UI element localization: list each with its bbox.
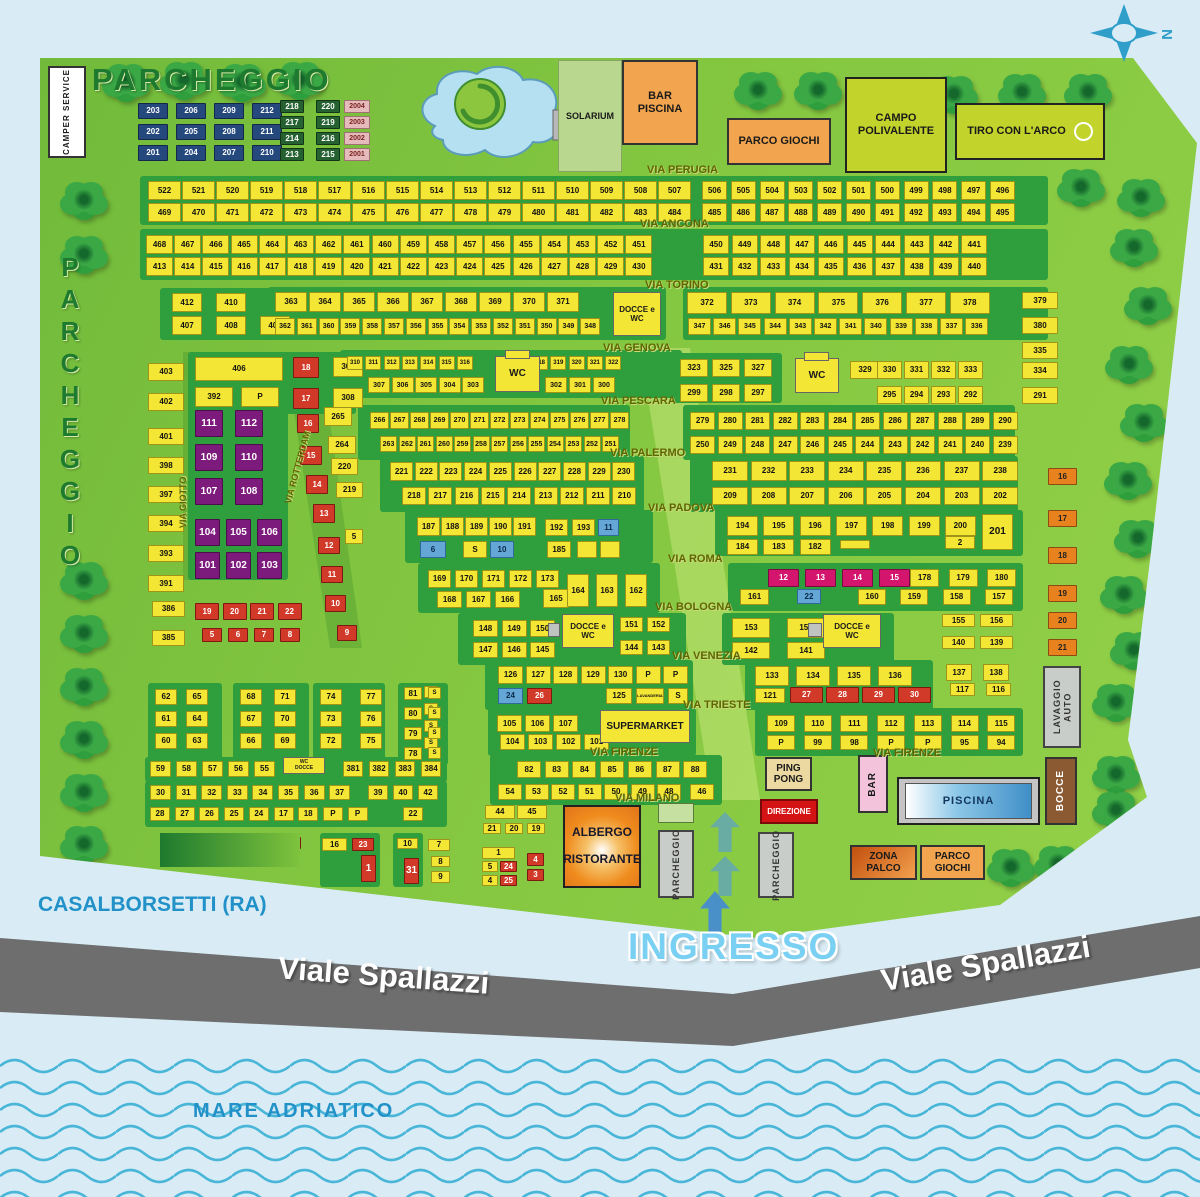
plot-30: 30: [150, 785, 171, 800]
plot-blank: [577, 541, 597, 558]
plot-241: 241: [938, 436, 963, 454]
plot-137: 137: [946, 664, 972, 681]
plot-495: 495: [990, 203, 1015, 222]
plot-P: P: [241, 387, 279, 407]
plot-163: 163: [596, 574, 618, 607]
plot-166: 166: [495, 591, 520, 608]
plot-332: 332: [931, 361, 956, 379]
plot-482: 482: [590, 203, 623, 222]
plot-276: 276: [570, 412, 589, 429]
plot-7: 7: [428, 839, 450, 851]
plot-501: 501: [846, 181, 871, 200]
docce-wc-bologna-ovest: DOCCE e WC: [562, 614, 614, 648]
plot-515: 515: [386, 181, 419, 200]
campground-map: PARCHEGGIO PARCHEGGIO 203206209212202205…: [0, 0, 1200, 950]
tree-icon: [1043, 850, 1073, 876]
plot-107: 107: [553, 715, 578, 732]
plot-149: 149: [502, 620, 527, 637]
plot-361: 361: [297, 318, 317, 335]
plot-3: 3: [527, 869, 544, 881]
plot-442: 442: [933, 235, 959, 254]
plot-371: 371: [547, 292, 579, 312]
plot-180: 180: [987, 569, 1016, 587]
plot-212: 212: [560, 487, 584, 505]
street-label: VIA GENOVA: [603, 342, 671, 354]
plot-220: 220: [316, 100, 340, 113]
plot-406: 406: [195, 357, 283, 381]
plot-263: 263: [380, 436, 397, 452]
plot-104: 104: [500, 734, 525, 750]
plot-107: 107: [195, 478, 223, 505]
plot-248: 248: [745, 436, 770, 454]
bar-piscina-label: BAR PISCINA: [638, 90, 683, 115]
plot-355: 355: [428, 318, 448, 335]
parco-giochi-nord: PARCO GIOCHI: [727, 118, 831, 165]
plot-494: 494: [961, 203, 986, 222]
plot-219: 219: [336, 482, 363, 498]
plot-194: 194: [727, 516, 758, 536]
plot-312: 312: [384, 356, 400, 370]
plot-472: 472: [250, 203, 283, 222]
plot-468: 468: [146, 235, 173, 254]
parco-giochi-sud-label: PARCO GIOCHI: [935, 851, 971, 874]
piscina: PISCINA: [905, 783, 1032, 819]
plot-258: 258: [473, 436, 490, 452]
plot-213: 213: [280, 148, 304, 161]
plot-82: 82: [517, 761, 541, 778]
plot-189: 189: [465, 517, 488, 536]
plot-26: 26: [527, 688, 552, 704]
plot-446: 446: [818, 235, 844, 254]
plot-349: 349: [558, 318, 578, 335]
plot-217: 217: [428, 487, 452, 505]
plot-492: 492: [904, 203, 929, 222]
plot-458: 458: [428, 235, 455, 254]
plot-354: 354: [449, 318, 469, 335]
plot-20: 20: [1048, 612, 1077, 629]
plot-415: 415: [202, 257, 229, 276]
plot-125: 125: [606, 688, 632, 704]
plot-227: 227: [538, 462, 561, 481]
plot-428: 428: [569, 257, 596, 276]
plot-208: 208: [214, 124, 244, 140]
camper-service: CAMPER SERVICE: [48, 66, 86, 158]
plot-478: 478: [454, 203, 487, 222]
plot-384: 384: [421, 761, 441, 777]
plot-135: 135: [837, 666, 871, 686]
plot-331: 331: [904, 361, 929, 379]
plot-211: 211: [252, 124, 282, 140]
plot-466: 466: [202, 235, 229, 254]
plot-144: 144: [620, 640, 643, 655]
plot-238: 238: [982, 461, 1018, 481]
street-label: VIA PERUGIA: [647, 164, 718, 176]
plot-P: P: [767, 735, 795, 750]
plot-322: 322: [605, 356, 621, 370]
plot-207: 207: [214, 145, 244, 161]
plot-203: 203: [944, 487, 980, 505]
plot-475: 475: [352, 203, 385, 222]
plot-81: 81: [404, 687, 422, 700]
plot-425: 425: [484, 257, 511, 276]
plot-419: 419: [315, 257, 342, 276]
plot-22: 22: [797, 589, 821, 604]
plot-210: 210: [612, 487, 636, 505]
plot-27: 27: [790, 687, 823, 703]
tree-icon: [69, 186, 99, 212]
plot-499: 499: [904, 181, 929, 200]
plot-287: 287: [910, 412, 935, 430]
plot-430: 430: [625, 257, 652, 276]
viale-spallazzi-road: [0, 905, 1200, 1055]
road-band: [715, 510, 1023, 556]
plot-197: 197: [836, 516, 867, 536]
plot-433: 433: [760, 257, 786, 276]
lavaggio-auto: LAVAGGIO AUTO: [1043, 666, 1081, 748]
plot-327: 327: [744, 359, 772, 377]
plot-130: 130: [608, 666, 633, 684]
plot-52: 52: [551, 784, 575, 800]
plot-8: 8: [431, 856, 450, 867]
area-verde-ingresso: [658, 803, 694, 823]
plot-152: 152: [647, 617, 670, 632]
tree-icon: [69, 778, 99, 804]
plot-88: 88: [683, 761, 707, 778]
plot-265: 265: [324, 407, 352, 426]
tree-icon: [69, 619, 99, 645]
plot-94: 94: [987, 735, 1015, 750]
plot-22: 22: [278, 603, 302, 620]
plot-359: 359: [340, 318, 360, 335]
plot-372: 372: [687, 292, 727, 314]
plot-207: 207: [789, 487, 825, 505]
plot-200: 200: [945, 516, 976, 536]
street-label: VIA ROMA: [668, 553, 723, 565]
plot-23: 23: [352, 838, 374, 851]
plot-29: 29: [862, 687, 895, 703]
street-label: VIA ANCONA: [640, 218, 709, 230]
plot-42: 42: [418, 785, 438, 800]
plot-78: 78: [404, 747, 422, 760]
plot-379: 379: [1022, 292, 1058, 309]
tree-icon: [69, 672, 99, 698]
plot-155: 155: [942, 614, 975, 627]
plot-136: 136: [878, 666, 912, 686]
parcheggio-interno-2: PARCHEGGIO: [758, 832, 794, 898]
plot-202: 202: [982, 487, 1018, 505]
tree-icon: [1129, 408, 1159, 434]
plot-76: 76: [360, 711, 382, 727]
plot-209: 209: [214, 103, 244, 119]
plot-401: 401: [148, 428, 184, 445]
plot-493: 493: [932, 203, 957, 222]
plot-16: 16: [322, 838, 347, 851]
plot-367: 367: [411, 292, 443, 312]
plot-103: 103: [528, 734, 553, 750]
plot-79: 79: [404, 727, 422, 740]
plot-18: 18: [298, 807, 318, 821]
plot-373: 373: [731, 292, 771, 314]
plot-164: 164: [567, 574, 589, 607]
plot-363: 363: [275, 292, 307, 312]
plot-280: 280: [718, 412, 743, 430]
tree-icon: [69, 830, 99, 856]
plot-111: 111: [195, 410, 223, 437]
plot-22: 22: [403, 807, 423, 821]
plot-260: 260: [436, 436, 453, 452]
plot-216: 216: [316, 132, 340, 145]
plot-116: 116: [986, 683, 1011, 696]
tree-icon: [1123, 524, 1153, 550]
supermarket-label: SUPERMARKET: [606, 721, 683, 733]
plot-102: 102: [226, 552, 251, 579]
albergo-ristorante: ALBERGO RISTORANTE: [563, 805, 641, 888]
plot-12: 12: [768, 569, 799, 587]
plot-193: 193: [572, 519, 595, 536]
plot-173: 173: [536, 570, 559, 588]
campo-polivalente: CAMPO POLIVALENTE: [845, 77, 947, 173]
plot-68: 68: [240, 689, 262, 705]
plot-519: 519: [250, 181, 283, 200]
plot-215: 215: [316, 148, 340, 161]
plot-217: 217: [280, 116, 304, 129]
plot-509: 509: [590, 181, 623, 200]
plot-24: 24: [249, 807, 269, 821]
plot-426: 426: [513, 257, 540, 276]
plot-274: 274: [530, 412, 549, 429]
plot-184: 184: [727, 539, 758, 555]
plot-172: 172: [509, 570, 532, 588]
plot-87: 87: [656, 761, 680, 778]
plot-457: 457: [456, 235, 483, 254]
plot-368: 368: [445, 292, 477, 312]
tree-icon: [1066, 173, 1096, 199]
plot-51: 51: [578, 784, 602, 800]
plot-429: 429: [597, 257, 624, 276]
plot-112: 112: [235, 410, 263, 437]
plot-481: 481: [556, 203, 589, 222]
plot-129: 129: [581, 666, 606, 684]
plot-437: 437: [875, 257, 901, 276]
lavaggio-auto-label: LAVAGGIO AUTO: [1052, 668, 1073, 746]
plot-6: 6: [228, 628, 248, 642]
plot-282: 282: [773, 412, 798, 430]
plot-192: 192: [545, 519, 568, 536]
plot-522: 522: [148, 181, 181, 200]
plot-304: 304: [439, 377, 461, 393]
plot-352: 352: [493, 318, 513, 335]
plot-134: 134: [796, 666, 830, 686]
plot-490: 490: [846, 203, 871, 222]
plot-18: 18: [1048, 547, 1077, 564]
plot-165: 165: [543, 589, 569, 608]
plot-351: 351: [515, 318, 535, 335]
plot-204: 204: [905, 487, 941, 505]
plot-266: 266: [370, 412, 389, 429]
plot-56: 56: [228, 761, 249, 777]
plot-228: 228: [563, 462, 586, 481]
plot-393: 393: [148, 545, 184, 562]
plot-182: 182: [800, 539, 831, 555]
street-label: VIA VENEZIA: [672, 650, 741, 662]
plot-191: 191: [513, 517, 536, 536]
plot-278: 278: [610, 412, 629, 429]
plot-233: 233: [789, 461, 825, 481]
plot-420: 420: [343, 257, 370, 276]
plot-473: 473: [284, 203, 317, 222]
plot-218: 218: [280, 100, 304, 113]
plot-474: 474: [318, 203, 351, 222]
plot-10: 10: [490, 541, 514, 558]
tree-icon: [69, 725, 99, 751]
plot-114: 114: [951, 715, 979, 732]
plot-417: 417: [259, 257, 286, 276]
plot-308: 308: [333, 388, 363, 408]
direzione: DIREZIONE: [760, 799, 818, 824]
plot-188: 188: [441, 517, 464, 536]
plot-17: 17: [274, 807, 294, 821]
plot-294: 294: [904, 386, 929, 404]
plot-62: 62: [155, 689, 177, 705]
plot-P: P: [348, 807, 368, 821]
plot-126: 126: [498, 666, 523, 684]
plot-320: 320: [569, 356, 585, 370]
plot-2: 2: [945, 536, 975, 549]
plot-237: 237: [944, 461, 980, 481]
plot-424: 424: [456, 257, 483, 276]
plot-246: 246: [800, 436, 825, 454]
direzione-label: DIREZIONE: [767, 807, 811, 816]
plot-440: 440: [961, 257, 987, 276]
solarium: SOLARIUM: [558, 60, 622, 172]
plot-57: 57: [202, 761, 223, 777]
plot-127: 127: [526, 666, 551, 684]
plot-18: 18: [293, 357, 319, 378]
plot-121: 121: [755, 688, 785, 703]
street-label: VIA PALERMO: [610, 447, 685, 459]
plot-199: 199: [909, 516, 940, 536]
plot-203: 203: [138, 103, 168, 119]
plot-339: 339: [890, 318, 913, 335]
plot-335: 335: [1022, 342, 1058, 359]
plot-71: 71: [274, 689, 296, 705]
wc-est-label: WC: [809, 370, 826, 382]
plot-255: 255: [528, 436, 545, 452]
plot-218: 218: [402, 487, 426, 505]
plot-108: 108: [235, 478, 263, 505]
street-label: VIA FIRENZE: [590, 746, 658, 758]
plot-24: 24: [498, 688, 523, 704]
plot-53: 53: [525, 784, 549, 800]
plot-346: 346: [713, 318, 736, 335]
plot-2004: 2004: [344, 100, 370, 113]
plot-507: 507: [658, 181, 691, 200]
plot-226: 226: [514, 462, 537, 481]
ping-pong: PING PONG: [765, 757, 812, 791]
plot-514: 514: [420, 181, 453, 200]
plot-421: 421: [372, 257, 399, 276]
plot-508: 508: [624, 181, 657, 200]
plot-112: 112: [877, 715, 905, 732]
plot-86: 86: [628, 761, 652, 778]
plot-315: 315: [439, 356, 455, 370]
plot-262: 262: [399, 436, 416, 452]
plot-374: 374: [775, 292, 815, 314]
plot-264: 264: [328, 436, 356, 454]
plot-369: 369: [479, 292, 511, 312]
plot-214: 214: [507, 487, 531, 505]
plot-343: 343: [789, 318, 812, 335]
plot-198: 198: [872, 516, 903, 536]
plot-39: 39: [368, 785, 388, 800]
plot-S: S: [428, 727, 441, 739]
plot-128: 128: [553, 666, 578, 684]
plot-456: 456: [484, 235, 511, 254]
plot-158: 158: [943, 589, 971, 605]
plot-58: 58: [176, 761, 197, 777]
tree-icon: [1007, 78, 1037, 104]
plot-334: 334: [1022, 362, 1058, 379]
plot-117: 117: [950, 683, 975, 696]
plot-290: 290: [993, 412, 1018, 430]
plot-35: 35: [278, 785, 299, 800]
plot-340: 340: [864, 318, 887, 335]
plot-141: 141: [787, 642, 825, 659]
plot-11: 11: [598, 519, 619, 536]
campground-map-page: PARCHEGGIO PARCHEGGIO 203206209212202205…: [0, 0, 1200, 1197]
plot-239: 239: [993, 436, 1018, 454]
parcheggio-interno-1: PARCHEGGIO: [658, 830, 694, 898]
plot-291: 291: [1022, 387, 1058, 404]
plot-139: 139: [980, 636, 1013, 649]
wc-ovest-label: WC: [509, 368, 526, 380]
solarium-label: SOLARIUM: [566, 111, 614, 121]
plot-215: 215: [481, 487, 505, 505]
plot-257: 257: [491, 436, 508, 452]
plot-455: 455: [513, 235, 540, 254]
plot-2003: 2003: [344, 116, 370, 129]
plot-105: 105: [226, 519, 251, 546]
plot-240: 240: [965, 436, 990, 454]
parcheggio-title: PARCHEGGIO: [92, 62, 332, 98]
plot-P: P: [323, 807, 343, 821]
plot-146: 146: [502, 642, 527, 658]
campo-polivalente-label: CAMPO POLIVALENTE: [858, 112, 934, 137]
plot-362: 362: [275, 318, 295, 335]
plot-261: 261: [417, 436, 434, 452]
plot-450: 450: [703, 235, 729, 254]
plot-7: 7: [254, 628, 274, 642]
plot-487: 487: [760, 203, 785, 222]
plot-230: 230: [612, 462, 635, 481]
plot-435: 435: [818, 257, 844, 276]
plot-353: 353: [471, 318, 491, 335]
wc-docce-sud-label: WC DOCCE: [295, 760, 313, 772]
plot-73: 73: [320, 711, 342, 727]
sea-waves: [0, 1052, 1200, 1197]
plot-4: 4: [527, 853, 544, 866]
tree-icon: [1119, 233, 1149, 259]
target-ring-icon: [1074, 122, 1093, 141]
plot-281: 281: [745, 412, 770, 430]
plot-59: 59: [150, 761, 171, 777]
plot-104: 104: [195, 519, 220, 546]
gray-square-2: [808, 623, 822, 637]
plot-69: 69: [274, 733, 296, 749]
plot-307: 307: [368, 377, 390, 393]
plot-222: 222: [415, 462, 438, 481]
plot-224: 224: [464, 462, 487, 481]
